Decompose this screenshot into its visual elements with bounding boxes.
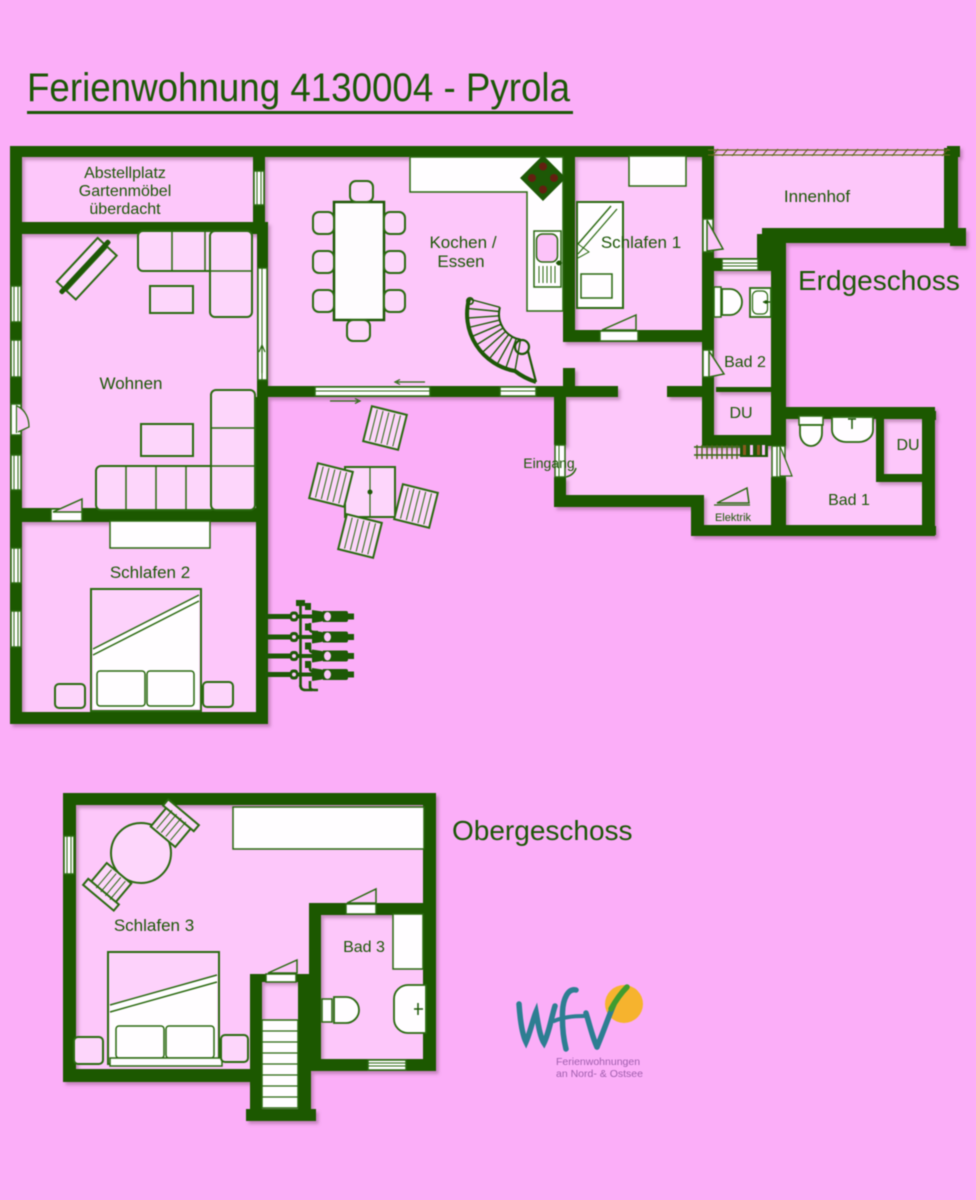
- svg-text:Bad 2: Bad 2: [724, 354, 766, 371]
- svg-text:Eingang: Eingang: [523, 455, 574, 471]
- svg-text:Elektrik: Elektrik: [715, 512, 752, 524]
- svg-text:Bad 3: Bad 3: [343, 939, 385, 956]
- svg-text:Innenhof: Innenhof: [784, 187, 850, 206]
- svg-text:Kochen /: Kochen /: [429, 233, 496, 252]
- svg-text:Abstellplatz: Abstellplatz: [84, 165, 166, 182]
- svg-text:DU: DU: [729, 405, 752, 422]
- svg-text:Schlafen 1: Schlafen 1: [601, 233, 681, 252]
- svg-text:Obergeschoss: Obergeschoss: [452, 815, 633, 846]
- svg-text:Bad 1: Bad 1: [828, 492, 870, 509]
- svg-text:Ferienwohnung 4130004 - Pyrola: Ferienwohnung 4130004 - Pyrola: [27, 66, 571, 110]
- svg-text:überdacht: überdacht: [89, 201, 161, 218]
- svg-text:Wohnen: Wohnen: [99, 374, 162, 393]
- svg-text:Gartenmöbel: Gartenmöbel: [79, 183, 172, 200]
- svg-text:Ferienwohnungen: Ferienwohnungen: [556, 1056, 640, 1068]
- svg-text:an Nord- & Ostsee: an Nord- & Ostsee: [556, 1068, 643, 1080]
- svg-text:Schlafen 2: Schlafen 2: [110, 563, 190, 582]
- svg-text:Erdgeschoss: Erdgeschoss: [798, 265, 960, 296]
- svg-text:Essen: Essen: [437, 252, 484, 271]
- svg-text:Schlafen 3: Schlafen 3: [114, 916, 194, 935]
- svg-text:DU: DU: [896, 437, 919, 454]
